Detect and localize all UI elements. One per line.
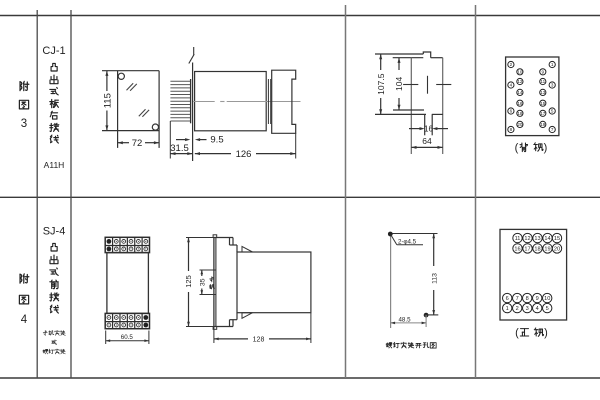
svg-text:14: 14 — [544, 236, 550, 242]
svg-text:4: 4 — [510, 83, 513, 88]
svg-text:17: 17 — [540, 111, 546, 116]
svg-text:12: 12 — [517, 79, 523, 84]
svg-text:(: ( — [515, 142, 519, 154]
svg-text:10: 10 — [544, 296, 550, 302]
svg-text:3: 3 — [21, 118, 27, 130]
svg-text:11: 11 — [540, 79, 545, 84]
svg-text:1: 1 — [506, 306, 509, 312]
svg-text:107.5: 107.5 — [376, 73, 386, 95]
svg-text:6: 6 — [506, 296, 509, 302]
svg-text:4: 4 — [21, 314, 28, 326]
svg-text:9: 9 — [542, 70, 545, 75]
svg-text:12: 12 — [524, 236, 530, 242]
svg-text:128: 128 — [253, 336, 265, 343]
svg-text:18: 18 — [534, 246, 540, 252]
svg-text:125: 125 — [184, 275, 193, 288]
svg-text:(: ( — [515, 327, 519, 339]
svg-text:1: 1 — [551, 62, 554, 67]
svg-text:20: 20 — [554, 246, 560, 252]
svg-text:2: 2 — [516, 306, 519, 312]
svg-text:3: 3 — [551, 83, 554, 88]
svg-text:SJ-4: SJ-4 — [43, 226, 66, 238]
svg-text:8: 8 — [510, 127, 513, 132]
svg-text:3: 3 — [526, 306, 529, 312]
svg-text:6: 6 — [510, 109, 513, 114]
svg-text:126: 126 — [236, 149, 252, 160]
svg-text:48.5: 48.5 — [398, 316, 411, 323]
svg-text:18: 18 — [517, 111, 523, 116]
svg-text:16: 16 — [517, 101, 523, 106]
svg-text:115: 115 — [102, 93, 113, 108]
svg-text:20: 20 — [517, 122, 523, 127]
svg-text:16: 16 — [514, 246, 520, 252]
svg-text:64: 64 — [422, 136, 432, 146]
svg-text:2-φ4.5: 2-φ4.5 — [398, 238, 417, 245]
svg-text:19: 19 — [544, 246, 550, 252]
svg-text:5: 5 — [551, 109, 554, 114]
svg-text:2: 2 — [510, 62, 513, 67]
svg-text:14: 14 — [517, 90, 523, 95]
svg-text:60.5: 60.5 — [121, 334, 134, 341]
svg-text:104: 104 — [394, 77, 404, 91]
svg-text:13: 13 — [540, 90, 546, 95]
svg-text:9: 9 — [536, 296, 539, 302]
svg-text:4: 4 — [536, 306, 539, 312]
svg-text:11: 11 — [515, 236, 521, 242]
svg-text:35: 35 — [199, 278, 206, 286]
svg-text:): ) — [544, 327, 548, 339]
svg-text:17: 17 — [524, 246, 530, 252]
svg-text:A11H: A11H — [44, 160, 65, 170]
svg-text:16: 16 — [424, 124, 433, 133]
svg-text:10: 10 — [517, 70, 523, 75]
svg-text:113: 113 — [431, 273, 438, 284]
svg-text:31.5: 31.5 — [170, 143, 189, 154]
svg-text:13: 13 — [534, 236, 540, 242]
svg-text:): ) — [544, 142, 548, 154]
svg-text:15: 15 — [540, 101, 546, 106]
svg-text:72: 72 — [132, 138, 143, 149]
svg-text:5: 5 — [546, 306, 549, 312]
svg-text:9.5: 9.5 — [210, 135, 223, 146]
svg-text:7: 7 — [551, 127, 554, 132]
svg-text:19: 19 — [540, 122, 546, 127]
svg-text:CJ-1: CJ-1 — [42, 45, 65, 57]
svg-text:8: 8 — [526, 296, 529, 302]
svg-text:7: 7 — [516, 296, 519, 302]
svg-text:15: 15 — [554, 236, 560, 242]
